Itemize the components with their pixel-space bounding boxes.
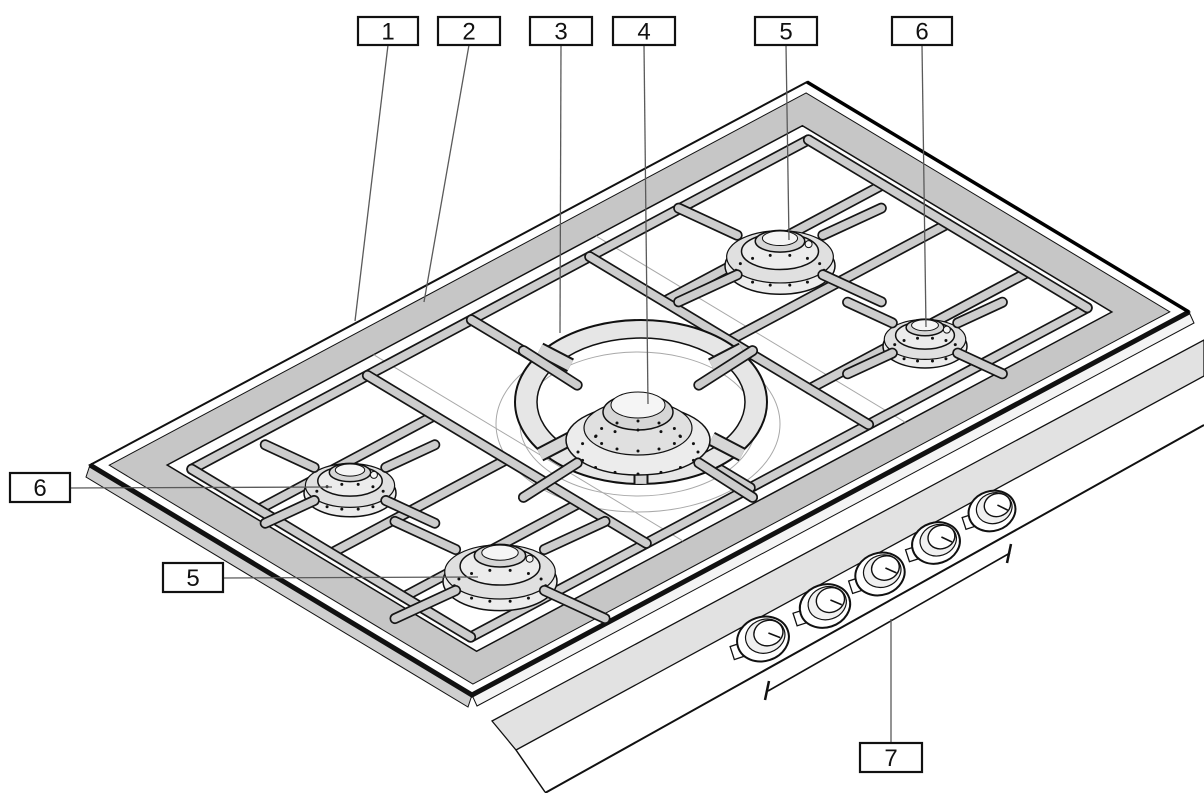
cooktop-illustration: 123456657: [0, 0, 1204, 793]
burner-semirapid-back: [725, 230, 835, 294]
figure-canvas: 123456657: [0, 0, 1204, 793]
callout-leader-line: [355, 45, 388, 321]
callout-number: 3: [554, 19, 567, 46]
callout-leader-line: [424, 45, 469, 302]
callout-number: 7: [884, 745, 897, 772]
callout-7-8: 7: [860, 619, 922, 772]
callout-1-0: 1: [355, 17, 418, 321]
callout-number: 5: [186, 565, 199, 592]
callout-number: 1: [381, 19, 394, 46]
callout-number: 2: [462, 19, 475, 46]
callout-number: 4: [637, 19, 650, 46]
callout-number: 6: [915, 19, 928, 46]
callout-number: 5: [779, 19, 792, 46]
callout-number: 6: [33, 475, 46, 502]
